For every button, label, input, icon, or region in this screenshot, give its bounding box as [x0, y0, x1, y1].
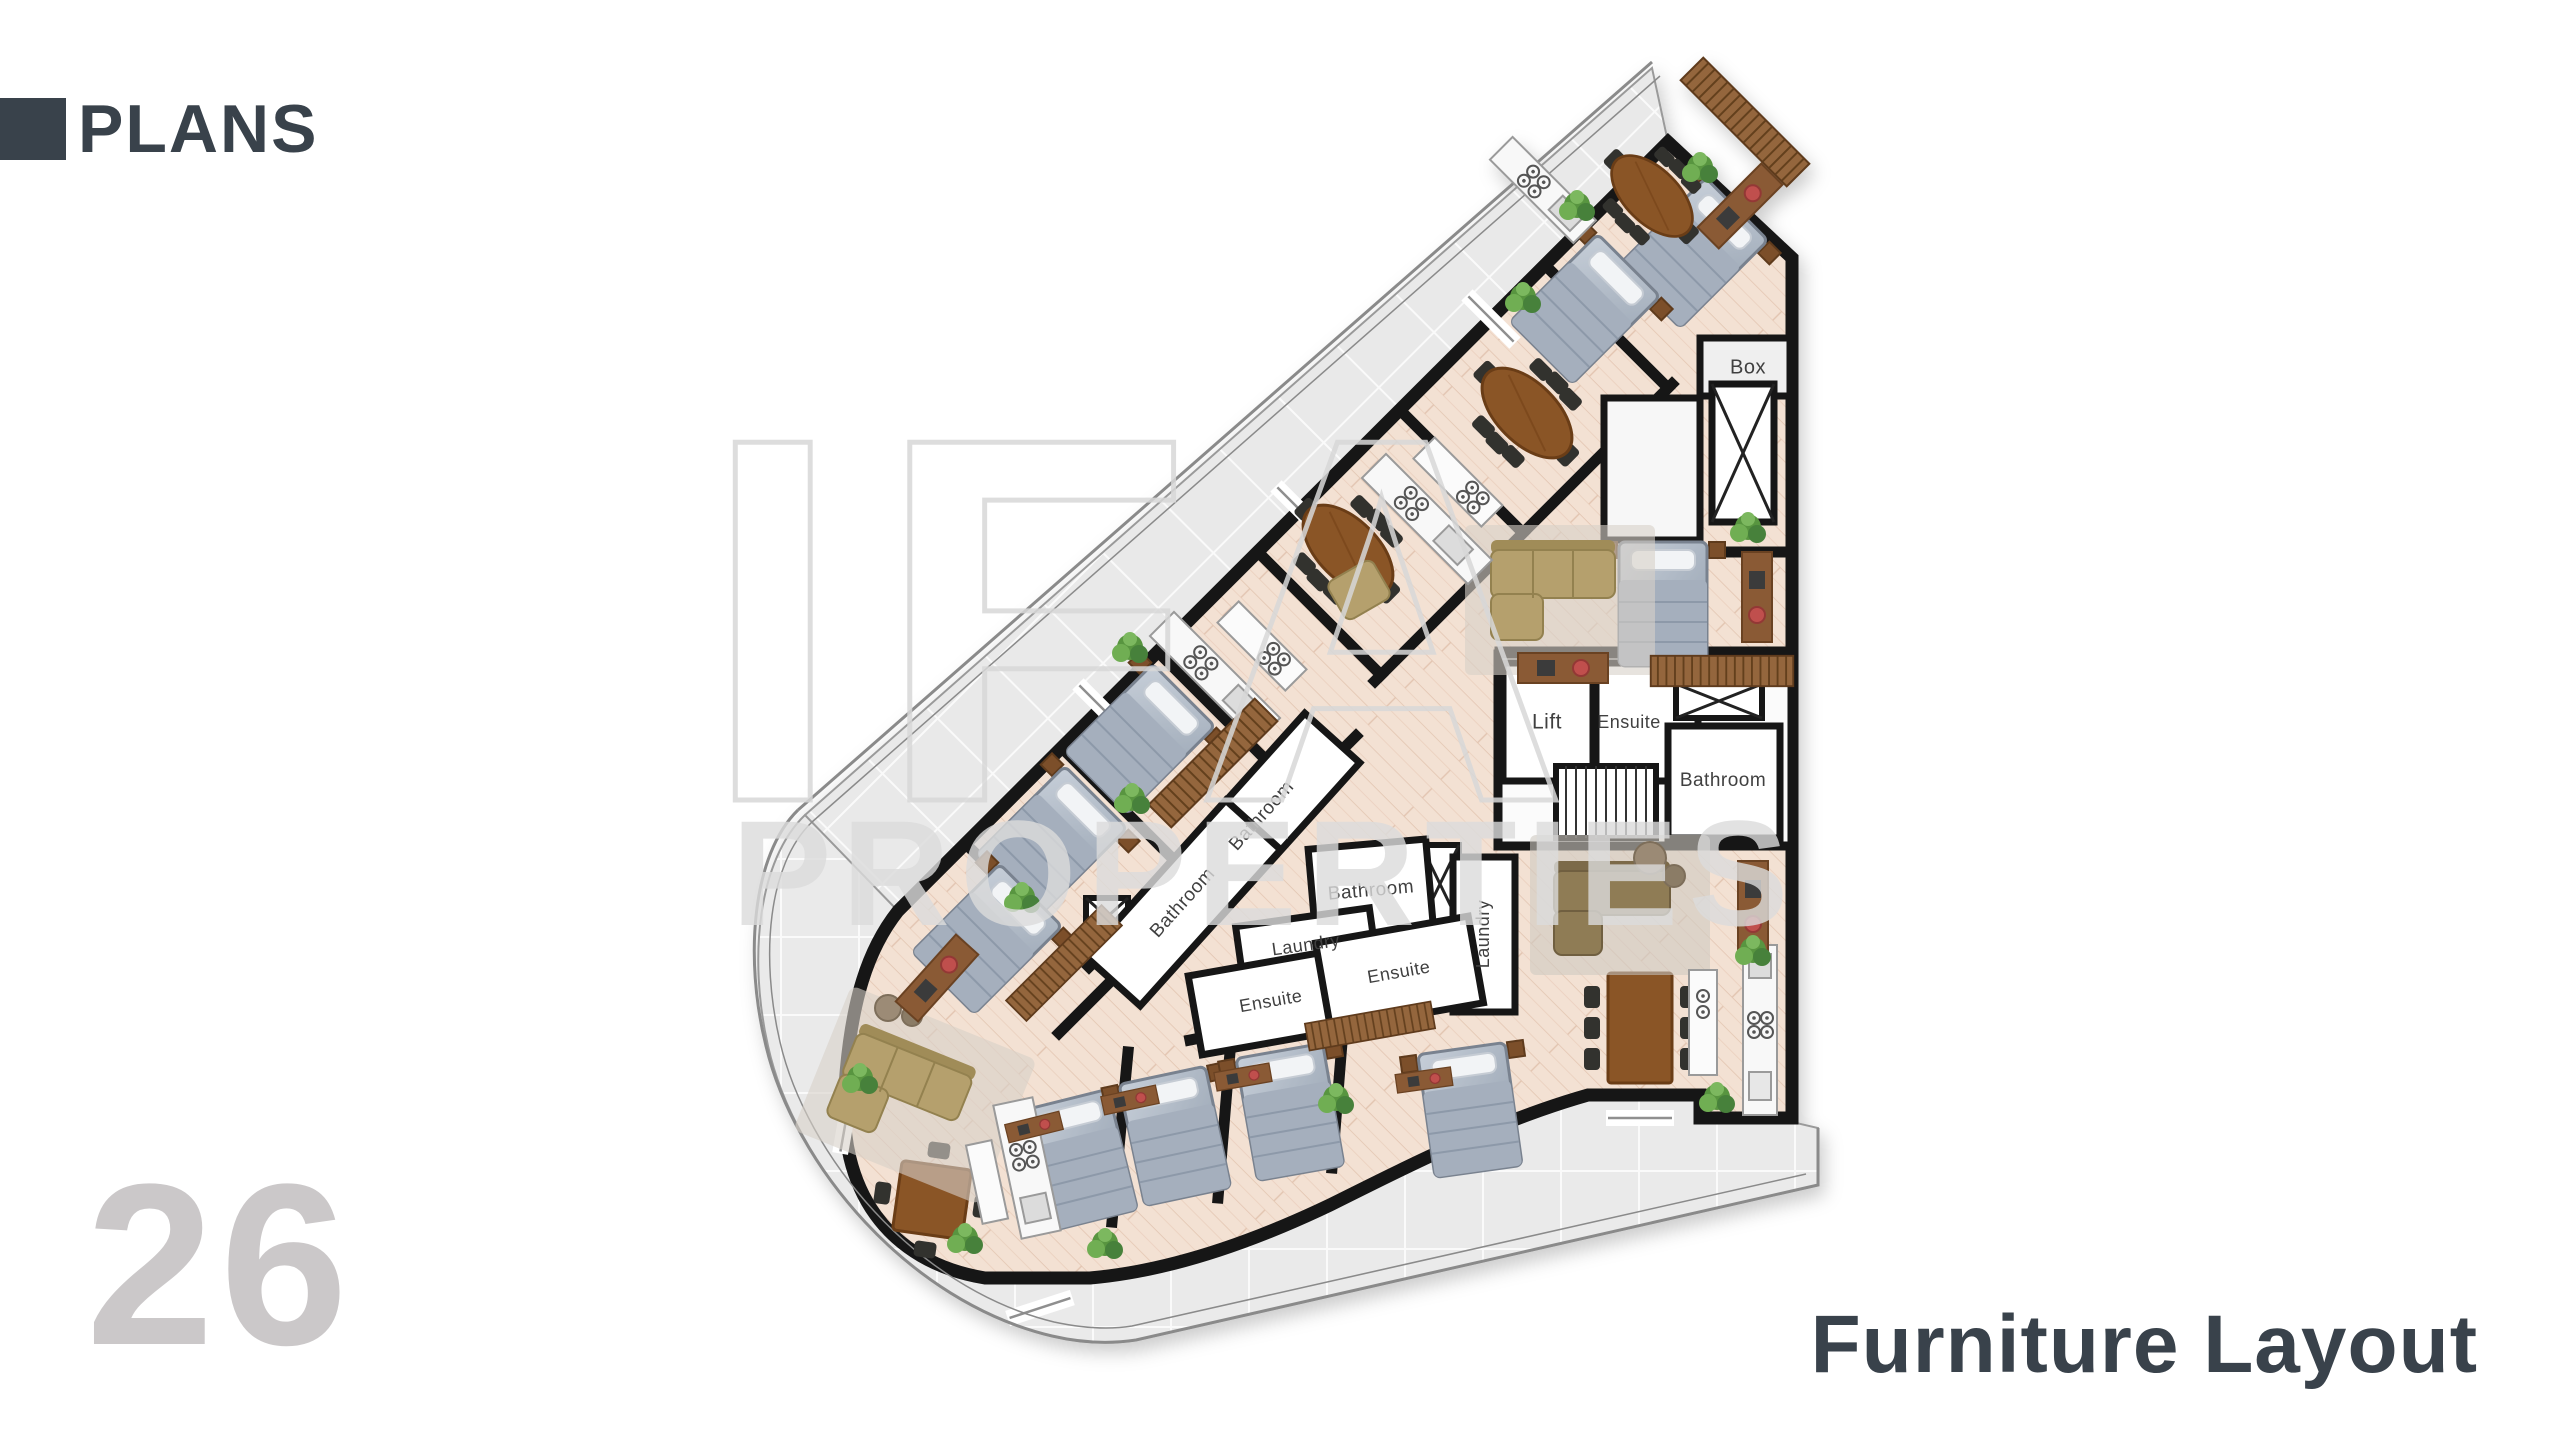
- room-label-bathroom: Bathroom: [1680, 770, 1766, 791]
- kitchen-counter: [1743, 945, 1777, 1115]
- watermark-properties-text: PROPERTIES: [732, 789, 1799, 957]
- room-label-box: Box: [1730, 356, 1766, 378]
- floor-plan: BoxLiftEnsuiteBathroomBathroomBathroomBa…: [0, 0, 2560, 1440]
- kitchen-island: [1689, 970, 1717, 1075]
- room-label-ensuite: Ensuite: [1597, 712, 1661, 732]
- slide: PLANS 26 Furniture Layout: [0, 0, 2560, 1440]
